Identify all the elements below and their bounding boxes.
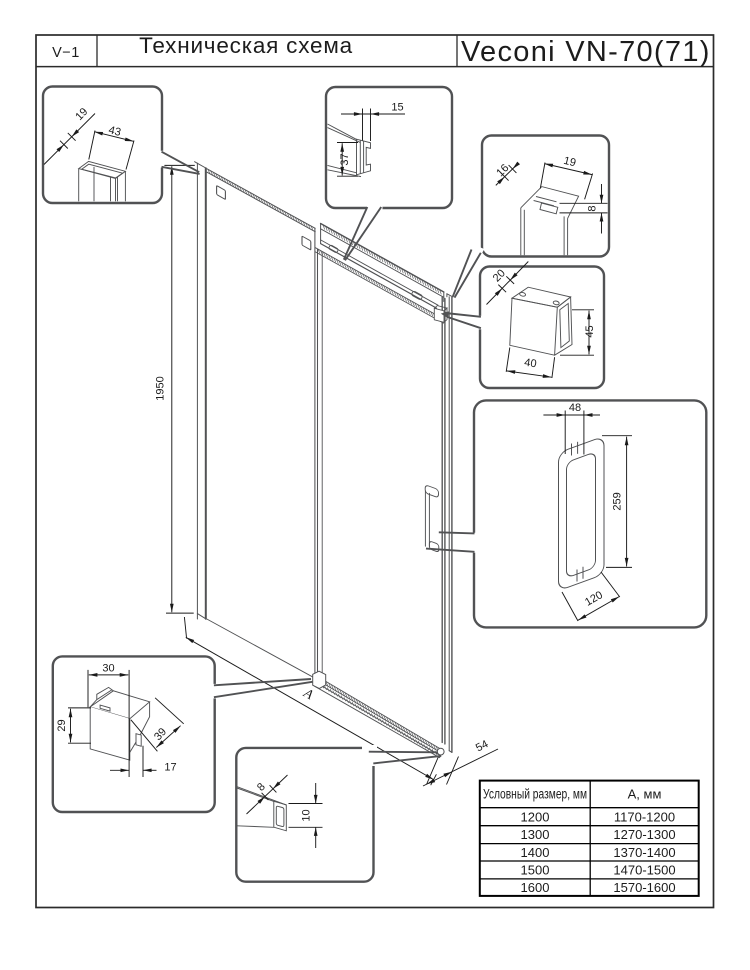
svg-text:А, мм: А, мм: [628, 786, 662, 801]
svg-text:Условный размер, мм: Условный размер, мм: [483, 786, 587, 801]
svg-text:1950: 1950: [155, 376, 167, 400]
svg-text:V−1: V−1: [52, 45, 80, 61]
svg-text:1270-1300: 1270-1300: [613, 827, 675, 842]
svg-text:1200: 1200: [521, 809, 550, 824]
svg-text:1400: 1400: [521, 845, 550, 860]
svg-text:29: 29: [56, 719, 68, 731]
svg-text:8: 8: [586, 205, 598, 211]
svg-text:Veconi VN-70(71): Veconi VN-70(71): [461, 36, 711, 68]
svg-text:30: 30: [102, 663, 114, 675]
svg-text:1470-1500: 1470-1500: [613, 863, 675, 878]
svg-text:Техническая схема: Техническая схема: [139, 33, 353, 58]
svg-text:1600: 1600: [521, 880, 550, 895]
svg-text:1170-1200: 1170-1200: [614, 809, 675, 824]
svg-text:1500: 1500: [521, 863, 550, 878]
svg-text:40: 40: [524, 357, 538, 371]
svg-text:37: 37: [339, 153, 351, 165]
svg-text:17: 17: [164, 762, 176, 774]
svg-text:1300: 1300: [521, 827, 550, 842]
svg-text:259: 259: [612, 492, 624, 510]
svg-text:1570-1600: 1570-1600: [613, 880, 675, 895]
svg-text:15: 15: [391, 102, 403, 114]
svg-text:45: 45: [584, 325, 596, 337]
svg-text:1370-1400: 1370-1400: [613, 845, 675, 860]
svg-text:48: 48: [569, 402, 581, 414]
svg-text:10: 10: [301, 809, 313, 821]
